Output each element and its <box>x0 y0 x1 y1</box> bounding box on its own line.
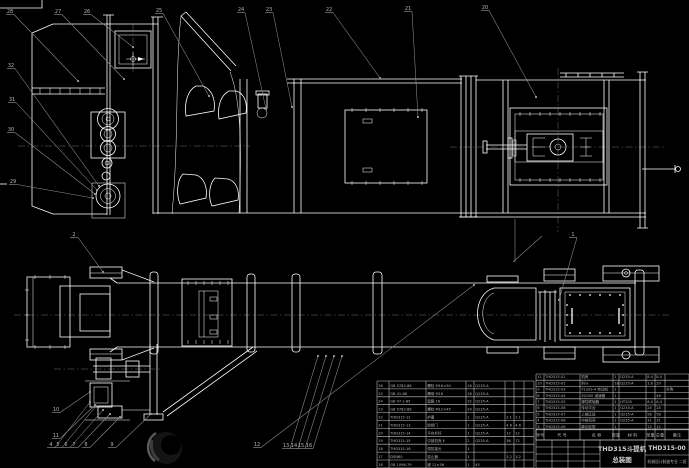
bom-right-cell: 8 <box>537 394 540 398</box>
cad-drawing-canvas: 2827262524232221203231302921101145678912… <box>0 0 689 468</box>
bom-header-row: 序号代 号名 称数量材 料单重总重备注 <box>536 429 689 440</box>
bom-right-cell: 1.6 <box>647 381 653 385</box>
bom-right-cell: THD315-08 <box>544 419 566 423</box>
balloon-number: 23 <box>266 7 272 13</box>
bom-right-cell: 机壳 <box>581 374 589 379</box>
leader-line <box>261 285 474 448</box>
bom-right-cell: 12 <box>656 425 661 429</box>
bom-right-cell: Y132S-4 电动机 <box>581 387 608 392</box>
balloon-number: 4 <box>49 442 52 448</box>
bom-right-cell: 牵引胶带 <box>581 424 596 429</box>
bom-right-cell: 11 <box>537 375 542 379</box>
bom-right-cell: Q235-A <box>620 406 634 410</box>
head-section <box>32 15 163 215</box>
leader-endpoint <box>102 271 104 273</box>
bom-left-cell: 护罩 <box>427 415 435 420</box>
drawing-number: THD315-00 <box>648 445 685 452</box>
bom-header-label: 名 称 <box>592 432 602 439</box>
bom-header-label: 材 料 <box>628 432 639 439</box>
bom-left-cell: 中部机壳 Ⅱ <box>427 438 445 443</box>
leader-line <box>90 417 120 448</box>
drive-unit <box>54 344 257 420</box>
bom-left-cell: 24 <box>467 408 472 412</box>
gearbox <box>90 383 112 407</box>
bom-left-cell: Q235-A <box>475 416 489 420</box>
bom-right-cell: 58 <box>656 412 661 416</box>
bom-left-cell: 16 <box>378 463 383 467</box>
bom-left-cell: 36 <box>506 439 511 443</box>
bom-right-cell: THD315-01 <box>544 375 565 379</box>
balloon-number: 8 <box>84 442 87 448</box>
drive-pulley-assembly <box>91 109 125 219</box>
bom-left-cell: 12 <box>515 431 520 435</box>
bom-header-label: 单重 <box>646 432 654 439</box>
leader-line <box>163 14 209 97</box>
balloon-number: 14 <box>291 443 297 449</box>
bom-left-cell: GB 41-86 <box>390 392 408 396</box>
bom-right-cell: 1 <box>614 400 616 404</box>
bom-left-cell: 带扣接头 <box>427 446 442 451</box>
leader-endpoint <box>119 416 121 418</box>
bom-left-cell: 螺栓 M12×45 <box>427 407 451 412</box>
balloon-number: 7 <box>72 442 75 448</box>
drawing-title-line1: THD315斗提机 <box>598 444 647 453</box>
bom-left-cell: GB 1096-79 <box>390 463 412 467</box>
bom-left-cell: 19 <box>378 439 383 443</box>
balloon-number: 2 <box>72 232 75 238</box>
revision-grid <box>536 440 600 468</box>
bom-right-cell: 18 <box>614 381 619 385</box>
bom-left-cell: 20 <box>378 431 383 435</box>
bom-left-cell: 2.1 <box>515 416 521 420</box>
bom-right-cell: 8.4 <box>647 375 653 379</box>
leader-line <box>78 414 110 448</box>
bom-left-cell: 32 <box>467 400 472 404</box>
leader-line <box>313 356 342 449</box>
bom-right-cell: 12 <box>647 425 652 429</box>
balloon-number: 13 <box>283 443 289 449</box>
bom-right-cell: 6 <box>537 406 540 410</box>
inspection-door <box>345 110 427 183</box>
leader-endpoint <box>473 284 475 286</box>
plan-inspection-section <box>182 279 232 346</box>
balloon-number: 26 <box>84 9 90 15</box>
bom-left-cell: Q235-A <box>475 423 489 427</box>
bom-left-cell: 垫圈 16 <box>427 399 441 404</box>
leader-endpoint <box>317 355 319 357</box>
bom-right-cell: THD315-07 <box>544 412 565 416</box>
balloon-number: 25 <box>156 8 162 14</box>
balloon-number: 5 <box>56 442 59 448</box>
bom-right-cell: 1 <box>614 412 616 416</box>
bom-left-cell: 12 <box>506 431 511 435</box>
bom-left-cell: 1 <box>467 455 469 459</box>
bom-left-cell: 24 <box>378 400 383 404</box>
bom-left-cell: THD315-13 <box>389 423 410 427</box>
bom-left-cell: 1 <box>467 447 469 451</box>
bom-right-cell: 传动平台 <box>581 405 596 410</box>
bom-left-cell: DSN60 <box>390 455 403 459</box>
bom-left-cell: 3.2 <box>506 455 512 459</box>
balloon-callouts: 2827262524232221203231302921101145678912… <box>6 5 577 449</box>
bom-right-cell: 6.4 <box>647 400 653 404</box>
bom-left-cell: 16 <box>467 384 472 388</box>
bom-header-label: 数量 <box>612 432 620 439</box>
bom-right-cell: THD315-02 <box>544 381 565 385</box>
bom-right-cell: ZQ350 减速器 <box>581 393 605 398</box>
bom-left-cell: 22 <box>378 416 383 420</box>
bom-left-cell: 1 <box>467 416 469 420</box>
bom-left-cell: THD315-12 <box>389 416 410 420</box>
bom-left-cell: Q235-A <box>475 400 489 404</box>
bom-header-label: 备注 <box>673 432 682 439</box>
leader-line <box>298 356 326 449</box>
balloon-number: 28 <box>7 9 13 15</box>
leader-endpoint <box>558 299 560 301</box>
leader-endpoint <box>109 413 111 415</box>
bom-right-cell: 中部机壳 <box>581 418 596 423</box>
leader-line <box>17 185 93 199</box>
bom-left-cell: THD315-16 <box>389 447 411 451</box>
bom-right-cell: Q235-A <box>620 419 634 423</box>
bom-right-cell: 3 <box>537 425 539 429</box>
bom-left-cell: 26 <box>378 384 383 388</box>
bom-left-cell: 2.1 <box>506 416 512 420</box>
leader-endpoint <box>417 116 419 118</box>
bom-header-label: 代 号 <box>557 432 567 439</box>
leader-endpoint <box>89 401 91 403</box>
bom-right-cell: THD315-03 <box>544 388 565 392</box>
elevator-buckets <box>172 12 269 214</box>
leader-endpoint <box>150 413 152 415</box>
bom-right-cell: 1 <box>614 388 616 392</box>
leader-line <box>333 13 380 79</box>
leader-endpoint <box>96 189 98 191</box>
bom-right-cell: 1 <box>614 394 616 398</box>
leader-endpoint <box>123 78 125 80</box>
plan-view <box>14 219 670 420</box>
bom-left-cell: 检修门 <box>427 422 438 427</box>
leader-endpoint <box>325 355 327 357</box>
middle-casing <box>153 76 646 217</box>
plan-head-section <box>25 267 154 360</box>
bom-left-cell: 4.6 <box>506 423 512 427</box>
leader-line <box>290 356 318 449</box>
bom-left-cell: 逆止器 <box>427 454 438 459</box>
bom-right-cell: 9 <box>537 388 540 392</box>
leader-endpoint <box>132 46 134 48</box>
bom-left-cell: Q235-A <box>475 408 489 412</box>
bom-right-cell: 料斗 <box>581 380 589 385</box>
leader-endpoint <box>265 108 267 110</box>
leader-endpoint <box>95 405 97 407</box>
balloon-number: 24 <box>238 7 244 13</box>
balloon-number: 31 <box>9 97 15 103</box>
bom-right-cell: THD315-05 <box>544 400 565 404</box>
bom-right-cell: 1 <box>614 425 616 429</box>
bom-right-cell: 1 <box>614 419 616 423</box>
bom-left-cell: 16 <box>467 392 472 396</box>
bom-left-cell: 45 <box>475 463 480 467</box>
balloon-number: 30 <box>8 127 14 133</box>
balloon-number: 10 <box>53 407 59 413</box>
frame-corner <box>0 0 42 184</box>
bom-left-cell: Q235-A <box>475 392 489 396</box>
bom-left-cell: Q235-A <box>475 384 489 388</box>
bom-left-cell: Q235-A <box>475 439 489 443</box>
side-view-elevation <box>18 12 681 232</box>
bom-right-cell: 7 <box>537 400 539 404</box>
bom-right-cell: 1 <box>614 406 616 410</box>
bom-left-cell: 1 <box>467 423 469 427</box>
balloon-number: 32 <box>8 63 14 69</box>
balloon-number: 20 <box>482 5 488 11</box>
balloon-number: 6 <box>64 442 67 448</box>
bom-left-cell: 21 <box>378 423 383 427</box>
bom-left-cell: THD315-15 <box>389 439 410 443</box>
bom-right-cell: 外购 <box>666 387 674 392</box>
leader-line <box>305 356 334 449</box>
bom-right-cell: 31 <box>647 419 652 423</box>
watermark-logo <box>148 432 182 464</box>
bom-right-cell: 24 <box>656 406 661 410</box>
leader-line <box>15 69 99 187</box>
leader-line <box>116 414 151 448</box>
leader-line <box>60 405 95 439</box>
bom-left-cell: 18 <box>378 447 383 451</box>
takeup-screw-rod <box>642 165 675 173</box>
balloon-number: 22 <box>326 7 332 13</box>
bom-right-cell: 8.4 <box>656 375 662 379</box>
balloon-number: 12 <box>254 442 260 448</box>
bom-right-cell: Q235-A <box>620 381 634 385</box>
leader-line <box>412 12 418 118</box>
drawing-svg: 2827262524232221203231302921101145678912… <box>0 0 689 468</box>
balloon-number: 21 <box>405 6 411 12</box>
bom-left-cell: 3.2 <box>515 455 521 459</box>
bom-left-cell: 4.6 <box>515 423 521 427</box>
balloon-number: 27 <box>55 9 61 15</box>
bom-right-cell: THD315-04 <box>544 394 566 398</box>
bom-left-cell: 2 <box>467 439 469 443</box>
bom-left-cell: GB 5782-86 <box>390 408 412 412</box>
balloon-number: 1 <box>571 232 574 238</box>
leader-endpoint <box>379 77 381 79</box>
bom-right-cell: 5 <box>537 412 539 416</box>
bom-left-cell: 平台栏杆 <box>427 430 442 435</box>
bom-right-cell: THD315-09 <box>544 425 566 429</box>
leader-endpoint <box>208 95 210 97</box>
leader-endpoint <box>291 106 293 108</box>
balloon-number: 29 <box>10 179 16 185</box>
leader-line <box>14 15 78 82</box>
bom-left-cell: THD315-14 <box>389 431 411 435</box>
bom-right-cell: 4 <box>537 419 540 423</box>
bom-right-cell: 29 <box>656 381 661 385</box>
bom-tables: 26GB 5782-86螺栓 M16×5016Q235-A25GB 41-86螺… <box>377 374 689 468</box>
bom-left-cell: 螺母 M16 <box>427 391 444 396</box>
bom-left-cell: 23 <box>378 408 383 412</box>
cover-bolts <box>566 294 624 334</box>
bom-right-cell: Q235-A <box>620 375 634 379</box>
bom-right-cell: 58 <box>647 412 652 416</box>
bom-right-cell: 46 <box>656 394 661 398</box>
bom-right-cell: Q235-A <box>620 412 634 416</box>
bom-right-cell: 10 <box>537 381 542 385</box>
tail-takeup-section <box>476 72 681 228</box>
leader-line <box>245 13 266 110</box>
bom-right-cell: 上部区段 <box>581 411 596 416</box>
bom-right-cell: 31 <box>656 419 661 423</box>
balloon-number: 9 <box>110 442 113 448</box>
bom-right-cell: HT200 <box>620 400 632 404</box>
leader-line <box>60 392 90 413</box>
leader-endpoint <box>341 355 343 357</box>
bom-left-cell: 25 <box>378 392 383 396</box>
head-top-cover <box>115 31 151 68</box>
leader-endpoint <box>102 409 104 411</box>
bom-header-label: 总重 <box>656 432 664 438</box>
drawing-title-line2: 总装图 <box>612 455 632 464</box>
plan-tail-section <box>478 219 660 362</box>
plan-casing <box>117 272 636 354</box>
balloon-number: 11 <box>53 433 59 439</box>
bom-left-cell: Q235-A <box>475 431 489 435</box>
bom-header-label: 序号 <box>536 432 544 439</box>
bom-left-cell: 72 <box>515 439 520 443</box>
bom-left-cell: 17 <box>378 455 383 459</box>
bom-right-cell: 弹性联轴器 <box>581 399 599 404</box>
bom-left-cell: 1 <box>467 431 469 435</box>
bom-right-cell: THD315-06 <box>544 406 566 410</box>
leader-endpoint <box>333 355 335 357</box>
leader-endpoint <box>77 80 79 82</box>
leader-endpoint <box>92 197 94 199</box>
leader-line <box>273 13 292 108</box>
bom-left-cell: 1 <box>467 463 469 467</box>
bom-left-cell: GB 97.1-85 <box>390 400 410 404</box>
bom-left-cell: 键 12×56 <box>427 462 445 467</box>
bom-left-cell: 螺栓 M16×50 <box>427 383 451 388</box>
leader-endpoint <box>98 185 100 187</box>
bom-right-cell: 6.4 <box>656 400 662 404</box>
bom-right-cell: 24 <box>647 406 652 410</box>
balloon-number: 16 <box>306 443 312 449</box>
leader-endpoint <box>535 96 537 98</box>
balloon-number: 15 <box>298 443 304 449</box>
title-block: 序号代 号名 称数量材 料单重总重备注 THD315斗提机 总装图 THD315… <box>536 429 689 468</box>
leader-endpoint <box>89 391 91 393</box>
bom-left-cell: GB 5782-86 <box>390 384 412 388</box>
leader-endpoint <box>94 193 96 195</box>
org-line: 机械设计制造专业 二班 <box>647 459 686 464</box>
leader-line <box>489 11 536 98</box>
bom-right-cell: 1 <box>614 375 616 379</box>
